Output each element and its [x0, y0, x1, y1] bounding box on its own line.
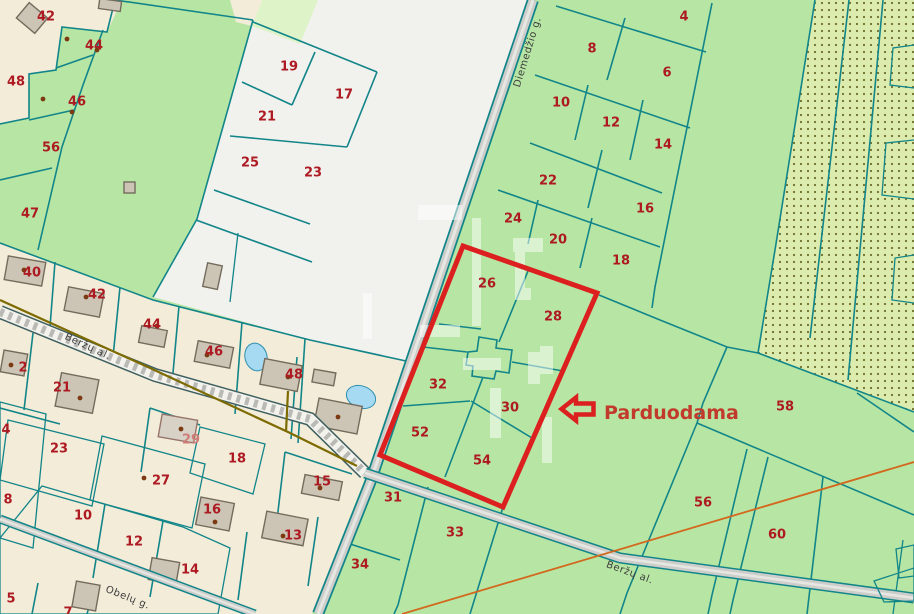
- parcel-number: 56: [42, 141, 60, 156]
- parcel-number: 48: [7, 75, 25, 90]
- parcel-number: 44: [85, 39, 103, 54]
- parcel-number: 14: [654, 138, 672, 153]
- parcel-number: 60: [768, 528, 786, 543]
- parcel-number: 40: [23, 266, 41, 281]
- parcel-number: 15: [313, 475, 331, 490]
- cadastral-map[interactable]: 4244484656471917212523486101214221624201…: [0, 0, 914, 614]
- parcel-number: 18: [612, 254, 630, 269]
- parcel-number: 17: [335, 88, 353, 103]
- parcel-number: 4: [679, 10, 688, 25]
- parcel-number: 6: [662, 66, 671, 81]
- parcel-number: 5: [6, 592, 15, 607]
- parcel-number: 2: [18, 361, 27, 376]
- parcel-number: 58: [776, 400, 794, 415]
- parcel-number: 22: [539, 174, 557, 189]
- parcel-number: 16: [636, 202, 654, 217]
- cadastral-map-viewport[interactable]: 4244484656471917212523486101214221624201…: [0, 0, 914, 614]
- parcel-number: 21: [53, 381, 71, 396]
- parcel-number: 46: [205, 345, 223, 360]
- parcel-number: 34: [351, 558, 369, 573]
- parcel-number: 25: [241, 156, 259, 171]
- parcel-number: 12: [125, 535, 143, 550]
- parcel-number: 32: [429, 378, 447, 393]
- parcel-number: 47: [21, 207, 39, 222]
- parcel-number: 44: [143, 318, 161, 333]
- parcel-number: 10: [74, 509, 92, 524]
- parcel-number: 46: [68, 95, 86, 110]
- parcel-number: 8: [3, 493, 12, 508]
- parcel-number: 18: [228, 452, 246, 467]
- parcel-number: 8: [587, 42, 596, 57]
- parcel-number: 16: [203, 503, 221, 518]
- parcel-number: 54: [473, 454, 491, 469]
- parcel-number: 13: [284, 529, 302, 544]
- parcel-number: 20: [549, 233, 567, 248]
- parcel-number: 12: [602, 116, 620, 131]
- parcel-number: 52: [411, 426, 429, 441]
- parcel-number: 31: [384, 491, 402, 506]
- parcel-number: 42: [37, 10, 55, 25]
- parcel-number: 23: [50, 442, 68, 457]
- parcel-number: 23: [304, 166, 322, 181]
- parcel-number: 21: [258, 110, 276, 125]
- parcel-number: 10: [552, 96, 570, 111]
- parcel-number: 27: [152, 474, 170, 489]
- for-sale-label: Parduodama: [604, 402, 739, 424]
- parcel-number: 29: [182, 433, 200, 448]
- parcel-number: 30: [501, 401, 519, 416]
- parcel-number: 48: [285, 368, 303, 383]
- parcel-number: 56: [694, 496, 712, 511]
- parcel-number: 14: [181, 563, 199, 578]
- parcel-number: 7: [63, 606, 72, 614]
- parcel-number: 4: [1, 423, 10, 438]
- parcel-number: 19: [280, 60, 298, 75]
- parcel-number: 33: [446, 526, 464, 541]
- parcel-number: 28: [544, 310, 562, 325]
- parcel-number: 24: [504, 212, 522, 227]
- parcel-number: 42: [88, 288, 106, 303]
- parcel-number: 26: [478, 277, 496, 292]
